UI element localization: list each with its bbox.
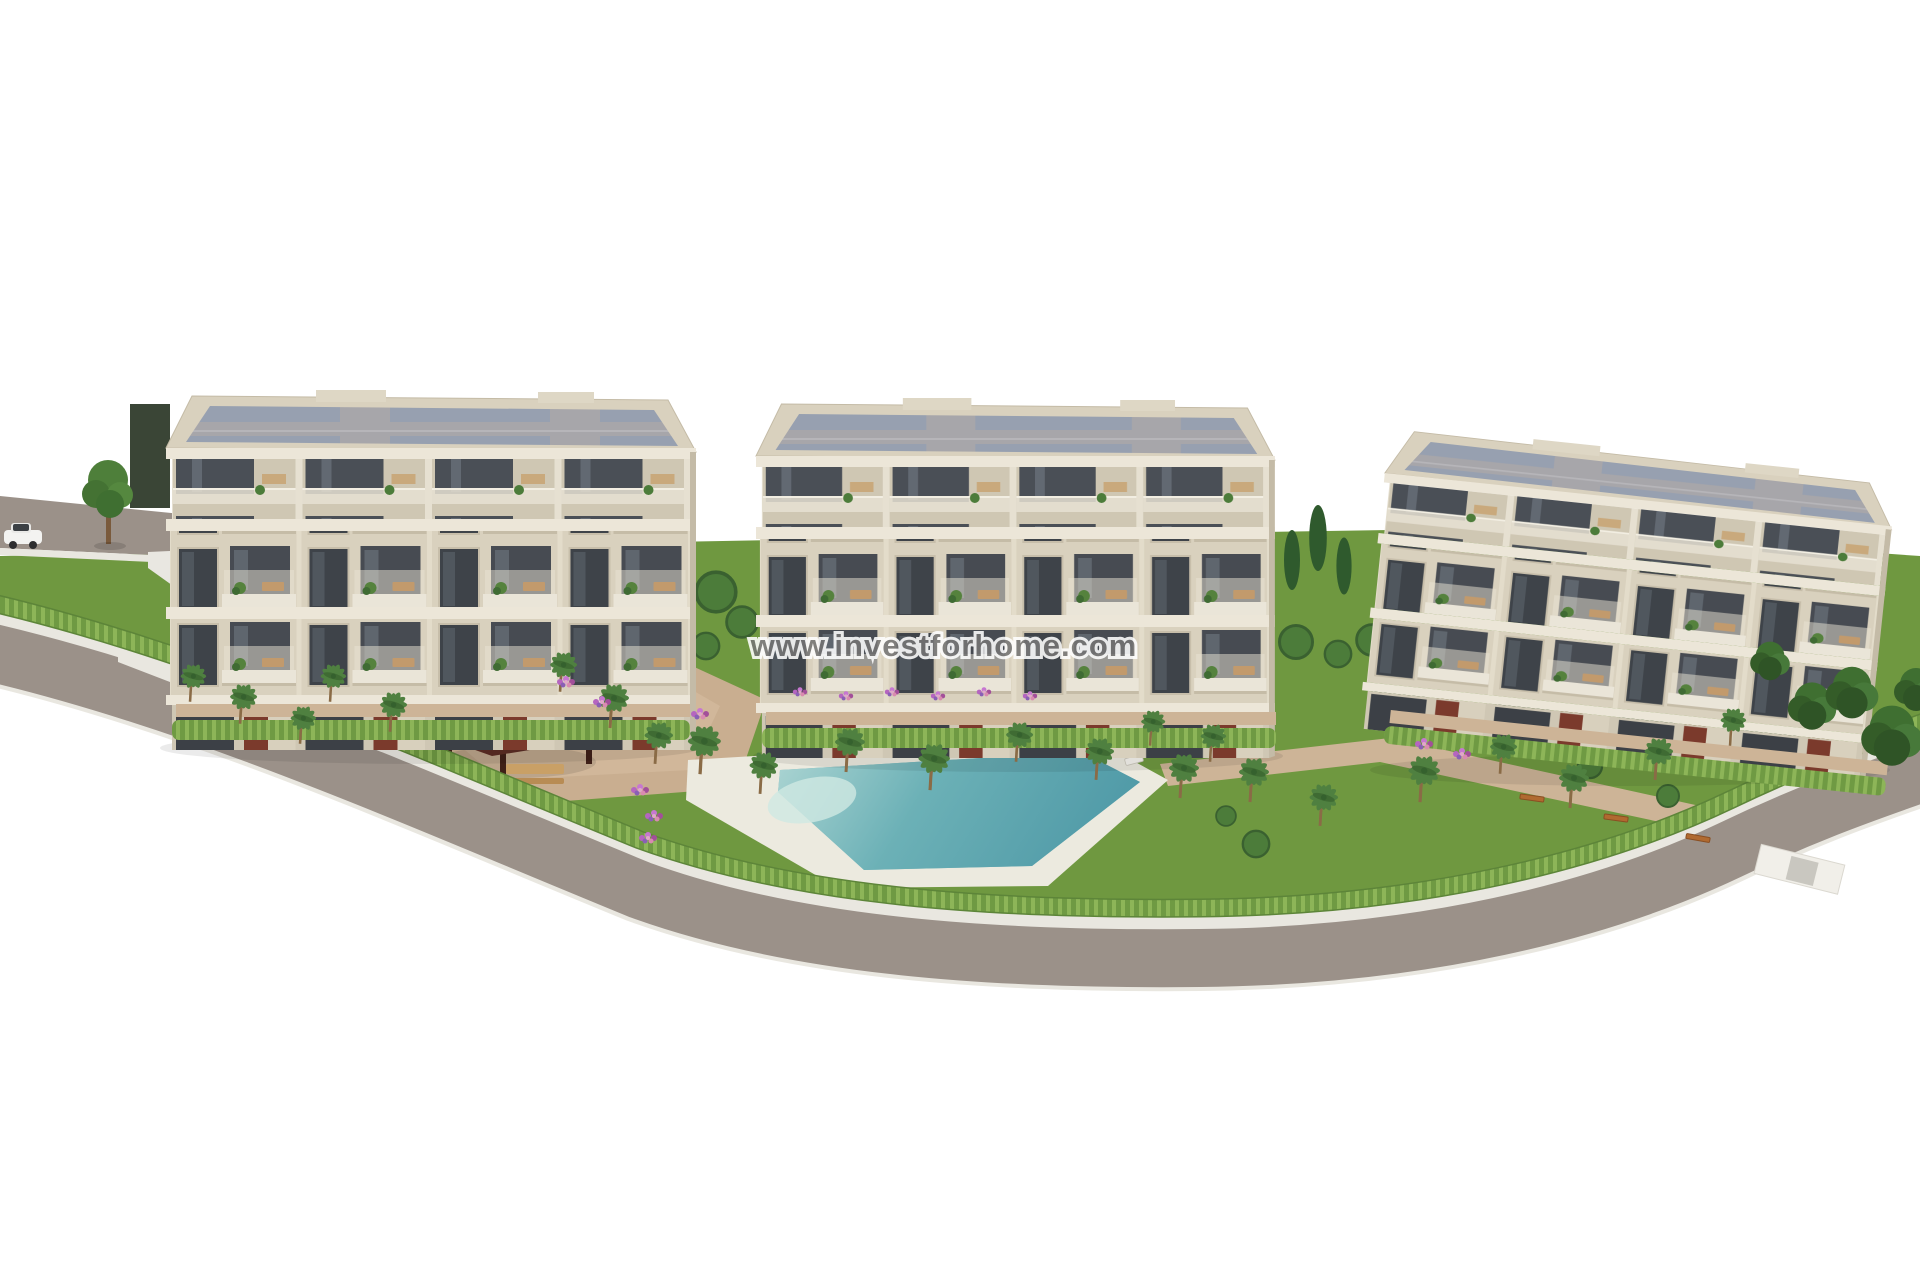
bush — [1657, 785, 1679, 807]
front-walkway-middle — [766, 712, 1276, 725]
cypress — [1336, 538, 1351, 595]
watermark-text: www.investforhome.com — [750, 628, 1138, 663]
building-middle — [756, 398, 1275, 758]
bush — [1325, 641, 1351, 667]
scene-svg: www.investforhome.com — [0, 0, 1920, 1280]
bush — [1280, 626, 1313, 659]
cypress — [1284, 530, 1300, 590]
car-wheel — [9, 541, 17, 549]
picnic-table — [506, 764, 564, 774]
render-canvas: www.investforhome.com — [0, 0, 1920, 1280]
bush — [696, 572, 736, 612]
tree-canopy — [96, 490, 124, 518]
car-wheel — [29, 541, 37, 549]
cypress — [1309, 505, 1327, 571]
dark-hedge-wall — [130, 404, 170, 508]
tree-shadow — [94, 542, 126, 550]
bush — [1243, 831, 1269, 857]
bush — [1216, 806, 1236, 826]
front-hedge-left — [172, 720, 690, 740]
car-windows — [13, 524, 29, 531]
bush — [693, 633, 719, 659]
